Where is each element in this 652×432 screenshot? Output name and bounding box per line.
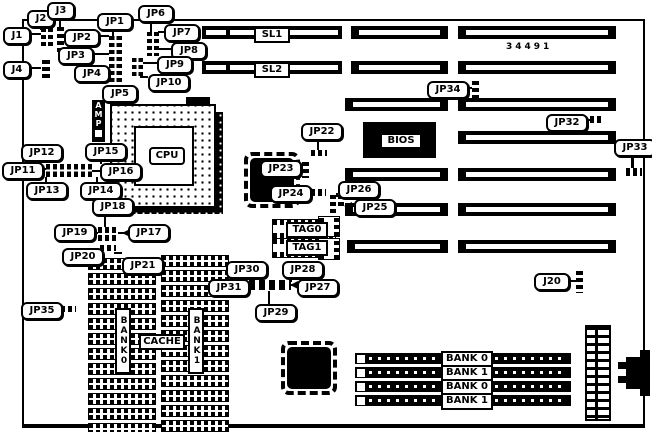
- callout-jp3: JP3: [58, 47, 94, 65]
- callout-jp30: JP30: [226, 261, 268, 279]
- callout-jp12: JP12: [21, 144, 63, 162]
- jumper-jp34-block: [472, 81, 479, 98]
- keyboard-connector-pin: [618, 362, 626, 369]
- callout-jp32: JP32: [546, 114, 588, 132]
- motherboard-jumper-diagram: 34491 SL1 SL2 CPU AMP BIOS TAG0 TAG1: [0, 0, 652, 432]
- callout-jp26: JP26: [338, 181, 380, 199]
- slot-label-sl2: SL2: [254, 62, 290, 78]
- callout-jp4: JP4: [74, 65, 110, 83]
- callout-jp6: JP6: [138, 5, 174, 23]
- jumper-jp27-jp31-block: [249, 280, 291, 290]
- cache-bank0-label: BANK0: [115, 308, 131, 374]
- jumper-jp9-jp10-block: [132, 58, 143, 76]
- cache-chip: [161, 375, 229, 387]
- callout-jp20: JP20: [62, 248, 104, 266]
- callout-jp13: JP13: [26, 182, 68, 200]
- jumper-j20-block: [576, 271, 583, 293]
- jumper-jp24-block: [311, 189, 326, 196]
- jumper-jp17-jp19-block: [98, 227, 118, 241]
- board-part-number: 34491: [506, 42, 552, 52]
- simm-socket: BANK 0: [355, 353, 571, 364]
- cache-chip: [88, 408, 156, 420]
- callout-jp34: JP34: [427, 81, 469, 99]
- cache-chip: [161, 405, 229, 417]
- simm-socket: BANK 0: [355, 381, 571, 392]
- callout-jp5: JP5: [102, 85, 138, 103]
- keyboard-connector-pin: [618, 376, 626, 383]
- slot-row7-right: [458, 240, 616, 253]
- callout-jp21: JP21: [122, 257, 164, 275]
- cache-chip: [161, 420, 229, 432]
- slot-sl1-right: [458, 26, 616, 39]
- amp-power-connector: AMP: [92, 100, 105, 142]
- simm-bank-label: BANK 1: [441, 393, 493, 410]
- callout-jp9: JP9: [157, 56, 193, 74]
- simm-socket: BANK 1: [355, 395, 571, 406]
- callout-jp29: JP29: [255, 304, 297, 322]
- slot-row7-left: [347, 240, 448, 253]
- cache-bank1-label: BANK1: [188, 308, 204, 374]
- jumper-jp11-jp16-block: [46, 164, 92, 177]
- callout-jp10: JP10: [148, 74, 190, 92]
- jumper-jp1-jp5-block: [109, 36, 122, 83]
- jumper-jp35-block: [61, 306, 76, 312]
- jumper-jp32-block: [590, 116, 604, 123]
- jumper-j1-j2-block: [41, 28, 53, 49]
- jumper-jp23-block: [302, 162, 309, 178]
- power-connector: [585, 325, 611, 421]
- callout-jp2: JP2: [64, 29, 100, 47]
- cache-chip: [88, 393, 156, 405]
- callout-jp7: JP7: [164, 24, 200, 42]
- callout-jp1: JP1: [97, 13, 133, 31]
- callout-j4: J4: [3, 61, 31, 79]
- slot-label-sl1: SL1: [254, 27, 290, 43]
- callout-jp19: JP19: [54, 224, 96, 242]
- bottom-qfp-chip: [281, 341, 337, 395]
- slot-sl1-mid: [351, 26, 448, 39]
- slot-sl2-right: [458, 61, 616, 74]
- callout-jp25: JP25: [354, 199, 396, 217]
- cache-chip: [88, 378, 156, 390]
- slot-row5-left: [345, 168, 448, 181]
- callout-jp23: JP23: [260, 160, 302, 178]
- callout-jp16: JP16: [100, 163, 142, 181]
- callout-jp17: JP17: [128, 224, 170, 242]
- tag1-label: TAG1: [286, 240, 328, 256]
- callout-jp35: JP35: [21, 302, 63, 320]
- cpu-socket-tab: [186, 97, 210, 105]
- callout-jp24: JP24: [270, 185, 312, 203]
- jumper-jp33-block: [626, 168, 642, 176]
- jumper-jp6-jp8-block: [147, 32, 159, 56]
- cache-chip: [88, 288, 156, 300]
- cache-chip: [161, 255, 229, 267]
- slot-row3-right: [458, 98, 616, 111]
- keyboard-connector-body: [626, 357, 644, 389]
- bios-label: BIOS: [381, 134, 421, 148]
- jumper-jp26-block: [330, 195, 336, 215]
- callout-jp18: JP18: [92, 198, 134, 216]
- callout-j20: J20: [534, 273, 570, 291]
- callout-j3: J3: [47, 2, 75, 20]
- jumper-j4-block: [42, 60, 50, 80]
- callout-jp31: JP31: [208, 279, 250, 297]
- callout-jp33: JP33: [614, 139, 652, 157]
- callout-jp15: JP15: [85, 143, 127, 161]
- callout-j1: J1: [3, 27, 31, 45]
- slot-row3-left: [345, 98, 448, 111]
- slot-row4-right: [458, 131, 616, 144]
- callout-jp11: JP11: [2, 162, 44, 180]
- cpu-label: CPU: [149, 147, 185, 165]
- callout-jp27: JP27: [297, 279, 339, 297]
- cache-chip: [88, 423, 156, 432]
- callout-jp28: JP28: [282, 261, 324, 279]
- cache-chip: [161, 390, 229, 402]
- simm-socket: BANK 1: [355, 367, 571, 378]
- cache-label: CACHE: [139, 334, 185, 350]
- jumper-jp22-block: [311, 150, 327, 156]
- slot-row6-right: [458, 203, 616, 216]
- slot-row5-right: [458, 168, 616, 181]
- callout-jp22: JP22: [301, 123, 343, 141]
- amp-label: AMP: [92, 101, 105, 128]
- tag0-label: TAG0: [286, 222, 328, 238]
- slot-sl2-mid: [351, 61, 448, 74]
